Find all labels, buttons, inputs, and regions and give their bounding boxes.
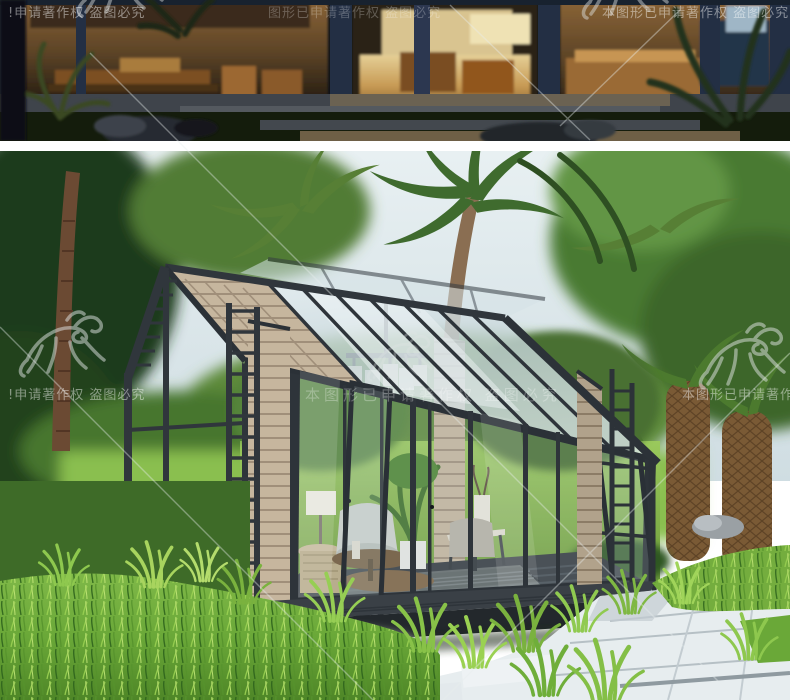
product-image: !申请著作权 盗图必究 图形已申请著作权 盗图必究 本图形已申请著作权 盗图必究… — [0, 0, 790, 700]
night-photo-panel — [0, 0, 790, 141]
panel-divider — [0, 141, 790, 151]
day-render-panel — [0, 151, 790, 700]
